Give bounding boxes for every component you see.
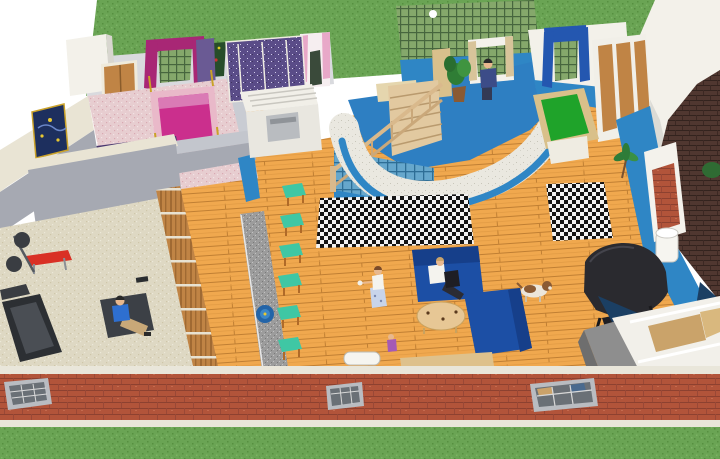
tray-arm (362, 282, 372, 283)
newel-post (330, 166, 336, 192)
wall-heater[interactable] (344, 352, 380, 365)
lawn-bottom (0, 427, 720, 459)
white-pillar[interactable] (656, 228, 678, 262)
sofa[interactable] (464, 288, 532, 356)
man-shirt (428, 264, 446, 284)
appliance[interactable] (266, 112, 300, 142)
shoe (144, 332, 151, 336)
laptop[interactable] (444, 270, 460, 288)
gym-man[interactable] (100, 293, 154, 338)
starry-night-painting[interactable] (32, 104, 68, 158)
games-window (542, 25, 590, 88)
scene-canvas (0, 0, 720, 459)
checkered-rug[interactable] (316, 194, 474, 248)
dog-snout (548, 286, 552, 290)
wall-trim-bottom (0, 420, 720, 427)
tray (358, 281, 363, 286)
lamp-silhouette (310, 50, 322, 86)
barbell-plate (6, 256, 22, 272)
brick-window (530, 378, 598, 412)
front-exterior (0, 366, 720, 459)
floorplan-render (0, 0, 720, 459)
barbell-plate (14, 232, 30, 248)
brick-window (326, 382, 364, 410)
curtain-left (144, 41, 158, 90)
white-closet[interactable] (240, 84, 322, 158)
wall-trim-top (0, 366, 720, 375)
checkered-rug[interactable] (546, 182, 613, 241)
wall-light (429, 10, 437, 18)
